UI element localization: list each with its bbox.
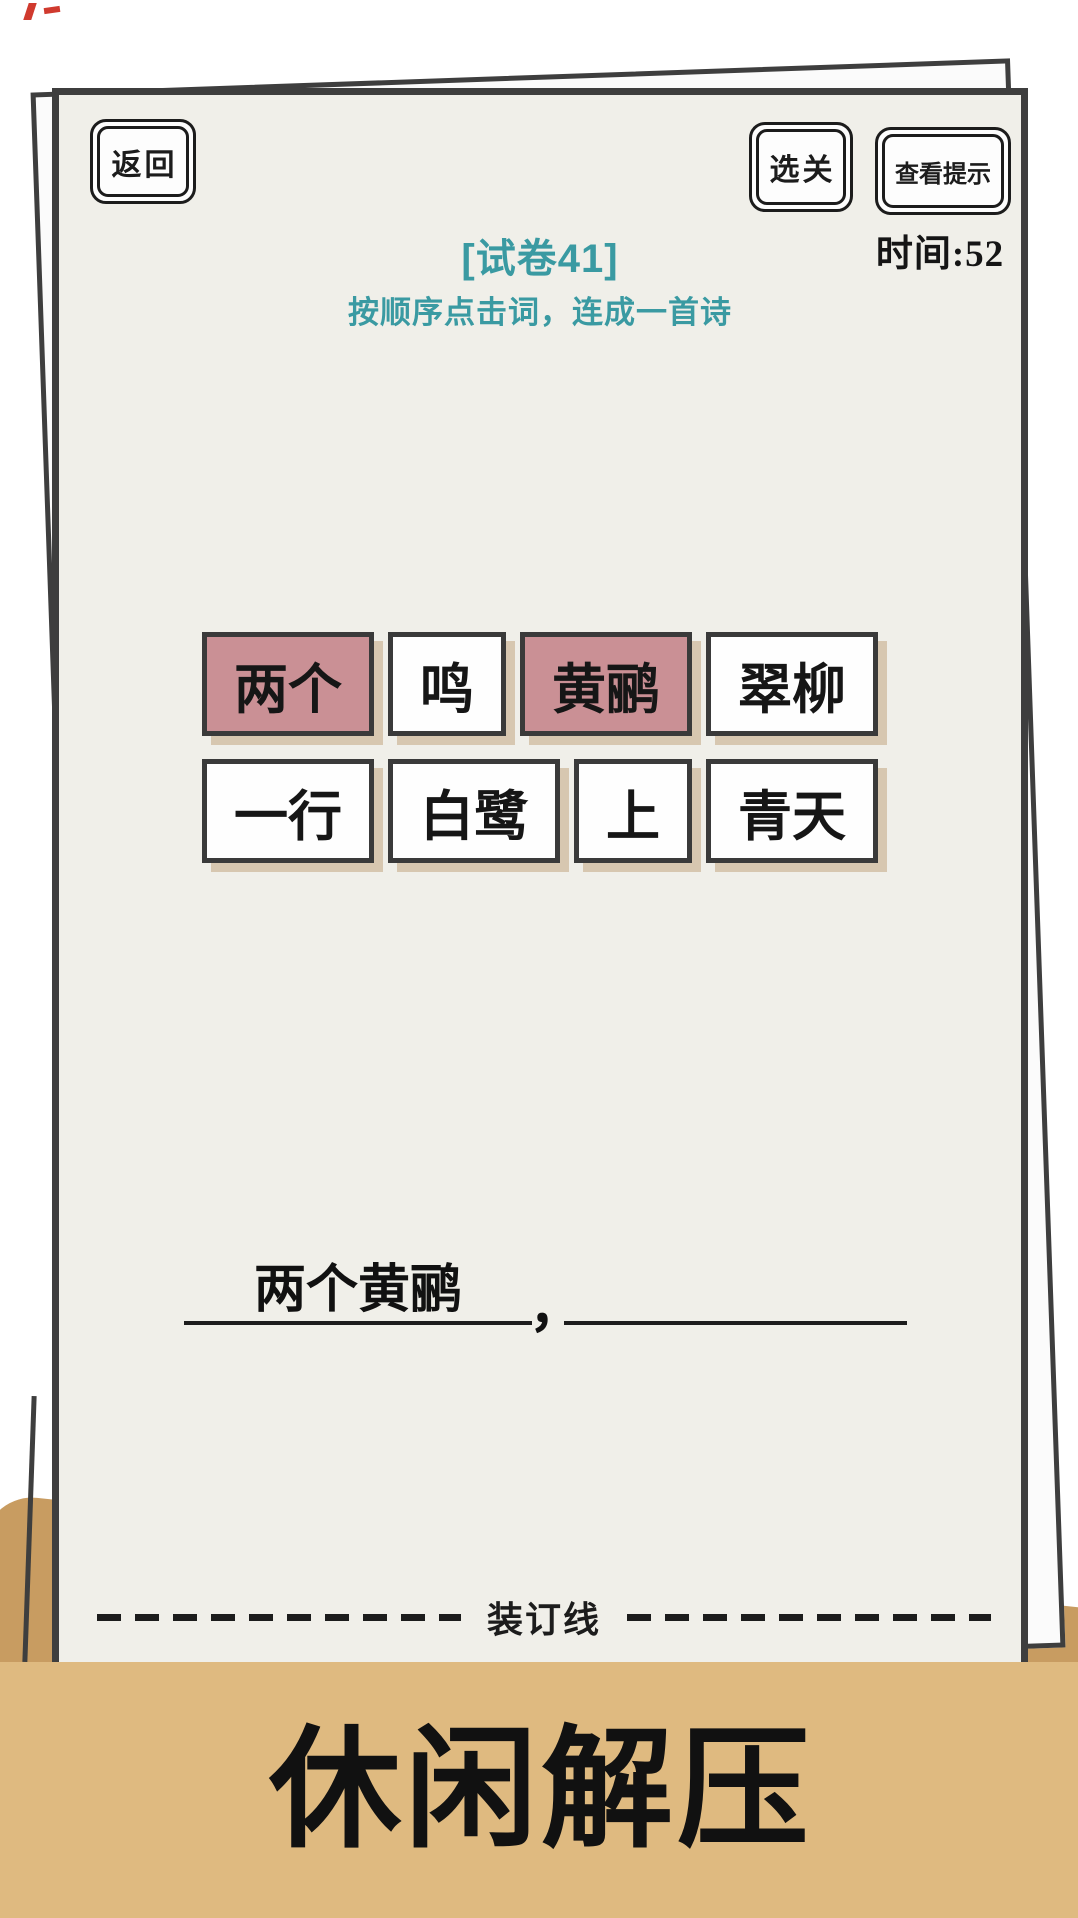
word-tile-liangge[interactable]: 两个	[202, 632, 374, 736]
hint-button-frame: 查看提示	[882, 134, 1004, 208]
word-tile-label: 青天	[738, 772, 846, 851]
hint-button[interactable]: 查看提示	[875, 127, 1011, 215]
hint-button-label: 查看提示	[895, 154, 991, 189]
answer-blank-1[interactable]: 两个黄鹂	[184, 1255, 532, 1325]
back-button-frame: 返回	[97, 126, 189, 197]
binding-line: 装订线	[97, 1595, 991, 1639]
answer-blank-2[interactable]	[564, 1255, 907, 1325]
word-tile-ming[interactable]: 鸣	[388, 632, 506, 736]
instruction-text: 按顺序点击词，连成一首诗	[59, 287, 1021, 332]
word-tile-label: 白鹭	[420, 772, 528, 851]
level-select-button[interactable]: 选关	[749, 122, 853, 212]
word-tile-huangli[interactable]: 黄鹂	[520, 632, 692, 736]
word-tile-label: 鸣	[420, 645, 474, 724]
back-button[interactable]: 返回	[90, 119, 196, 204]
red-mark-stroke	[44, 6, 61, 14]
back-button-label: 返回	[109, 140, 178, 184]
game-screen: 返回 选关 查看提示 时间:52 [试卷41] 按顺序点击词，连成一首诗 两个 …	[0, 0, 1078, 1918]
tile-row-2: 一行 白鹭 上 青天	[202, 759, 878, 863]
level-select-button-label: 选关	[767, 145, 836, 189]
red-mark-stroke	[23, 3, 37, 20]
tile-row-1: 两个 鸣 黄鹂 翠柳	[202, 632, 878, 736]
binding-label: 装订线	[487, 1591, 601, 1643]
word-tile-yixing[interactable]: 一行	[202, 759, 374, 863]
word-tile-label: 两个	[234, 645, 342, 724]
binding-dash-left	[97, 1614, 461, 1621]
word-tile-label: 黄鹂	[552, 645, 660, 724]
word-tile-label: 一行	[234, 772, 342, 851]
word-tile-qingtian[interactable]: 青天	[706, 759, 878, 863]
binding-dash-right	[627, 1614, 991, 1621]
word-tile-cuiliu[interactable]: 翠柳	[706, 632, 878, 736]
bottom-banner: 休闲解压	[0, 1662, 1078, 1918]
answer-blank-1-text: 两个黄鹂	[254, 1261, 462, 1321]
level-select-button-frame: 选关	[756, 129, 846, 205]
banner-label: 休闲解压	[265, 1670, 813, 1910]
word-tile-label: 翠柳	[738, 645, 846, 724]
word-tile-shang[interactable]: 上	[574, 759, 692, 863]
word-tiles: 两个 鸣 黄鹂 翠柳 一行 白鹭 上	[59, 632, 1021, 863]
exam-paper: 返回 选关 查看提示 时间:52 [试卷41] 按顺序点击词，连成一首诗 两个 …	[52, 88, 1028, 1688]
word-tile-label: 上	[606, 772, 660, 851]
page-title: [试卷41]	[59, 226, 1021, 284]
word-tile-bailu[interactable]: 白鹭	[388, 759, 560, 863]
